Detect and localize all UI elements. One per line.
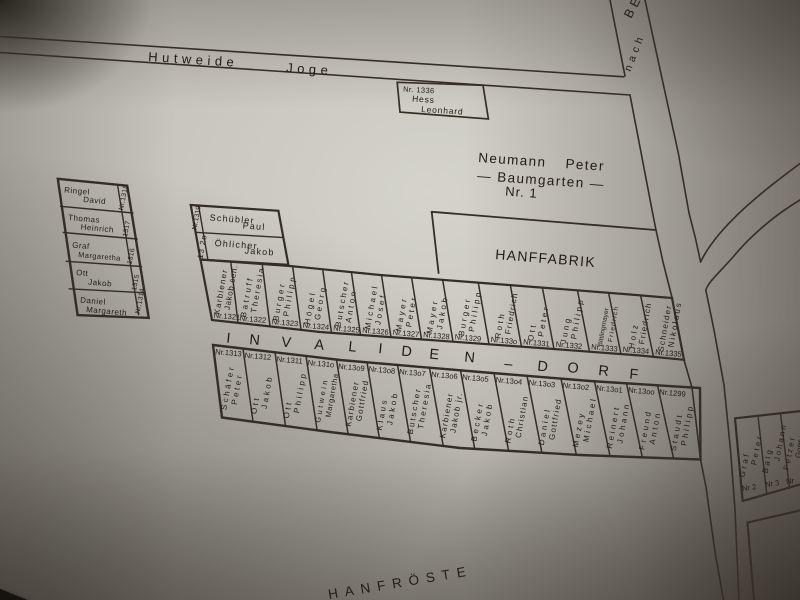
- svg-text:F: F: [629, 367, 639, 384]
- svg-text:Jakob: Jakob: [244, 246, 275, 258]
- svg-text:Ott: Ott: [76, 268, 89, 278]
- svg-text:E: E: [429, 347, 440, 364]
- svg-text:R: R: [598, 363, 610, 380]
- svg-text:V: V: [281, 335, 292, 352]
- svg-text:Joge: Joge: [286, 60, 333, 78]
- svg-text:O: O: [567, 360, 580, 377]
- svg-text:D: D: [401, 344, 413, 361]
- svg-text:N: N: [464, 350, 476, 367]
- svg-text:Paul: Paul: [242, 221, 265, 233]
- svg-text:L: L: [348, 339, 358, 356]
- svg-text:N: N: [249, 332, 261, 349]
- svg-text:A: A: [314, 337, 325, 354]
- svg-text:Nr. 1: Nr. 1: [505, 184, 538, 201]
- svg-text:D: D: [537, 359, 549, 376]
